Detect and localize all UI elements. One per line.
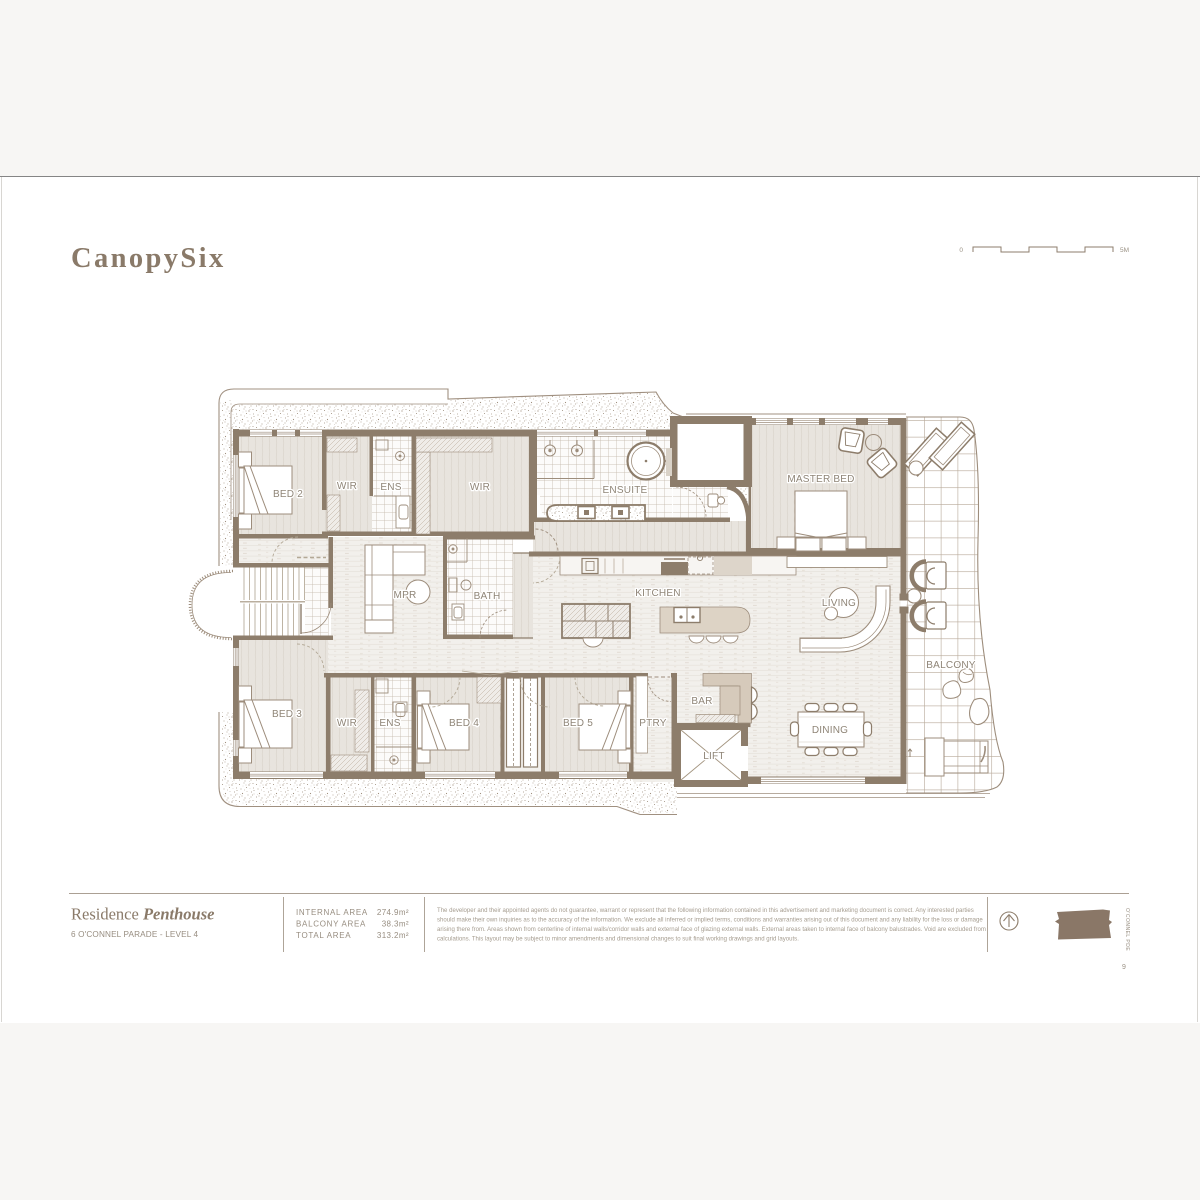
svg-text:calculations. This layout may: calculations. This layout may be subject… (437, 937, 799, 943)
svg-text:TOTAL AREA: TOTAL AREA (296, 931, 351, 940)
svg-text:WIR: WIR (337, 481, 357, 492)
svg-text:9: 9 (1122, 964, 1126, 971)
svg-text:MASTER BED: MASTER BED (787, 474, 854, 485)
svg-text:ENS: ENS (380, 482, 401, 493)
svg-text:38.3m²: 38.3m² (382, 920, 409, 929)
svg-text:DINING: DINING (812, 725, 848, 736)
svg-text:313.2m²: 313.2m² (377, 931, 409, 940)
svg-text:ENS: ENS (379, 718, 400, 729)
svg-text:KITCHEN: KITCHEN (635, 588, 681, 599)
svg-text:BALCONY AREA: BALCONY AREA (296, 920, 366, 929)
svg-text:INTERNAL AREA: INTERNAL AREA (296, 908, 368, 917)
svg-text:BED 4: BED 4 (449, 718, 479, 729)
svg-text:should make their own inquirie: should make their own inquiries as to th… (437, 918, 983, 924)
svg-text:BED 2: BED 2 (273, 489, 303, 500)
svg-text:274.9m²: 274.9m² (377, 908, 409, 917)
svg-text:BALCONY: BALCONY (926, 660, 976, 671)
svg-text:5M: 5M (1120, 247, 1129, 254)
svg-text:BED 3: BED 3 (272, 709, 302, 720)
svg-text:CanopySix: CanopySix (71, 243, 226, 274)
svg-text:Residence Penthouse: Residence Penthouse (71, 905, 214, 924)
svg-text:ENSUITE: ENSUITE (603, 485, 648, 496)
svg-text:LIVING: LIVING (822, 598, 856, 609)
svg-text:WIR: WIR (337, 718, 357, 729)
svg-text:BATH: BATH (474, 591, 501, 602)
svg-text:BED 5: BED 5 (563, 718, 593, 729)
svg-text:6 O'CONNEL PARADE - LEVEL 4: 6 O'CONNEL PARADE - LEVEL 4 (71, 930, 199, 939)
svg-text:arising there from. Areas show: arising there from. Areas shown from cen… (437, 927, 986, 933)
svg-text:PTRY: PTRY (639, 718, 667, 729)
svg-text:0: 0 (959, 247, 963, 254)
svg-text:O'CONNEL PDE: O'CONNEL PDE (1124, 908, 1130, 951)
svg-text:MPR: MPR (394, 590, 417, 601)
svg-text:LIFT: LIFT (703, 751, 724, 762)
svg-text:BAR: BAR (691, 696, 712, 707)
svg-text:The developer and their appoin: The developer and their appointed agents… (437, 908, 974, 914)
svg-text:WIR: WIR (470, 482, 490, 493)
